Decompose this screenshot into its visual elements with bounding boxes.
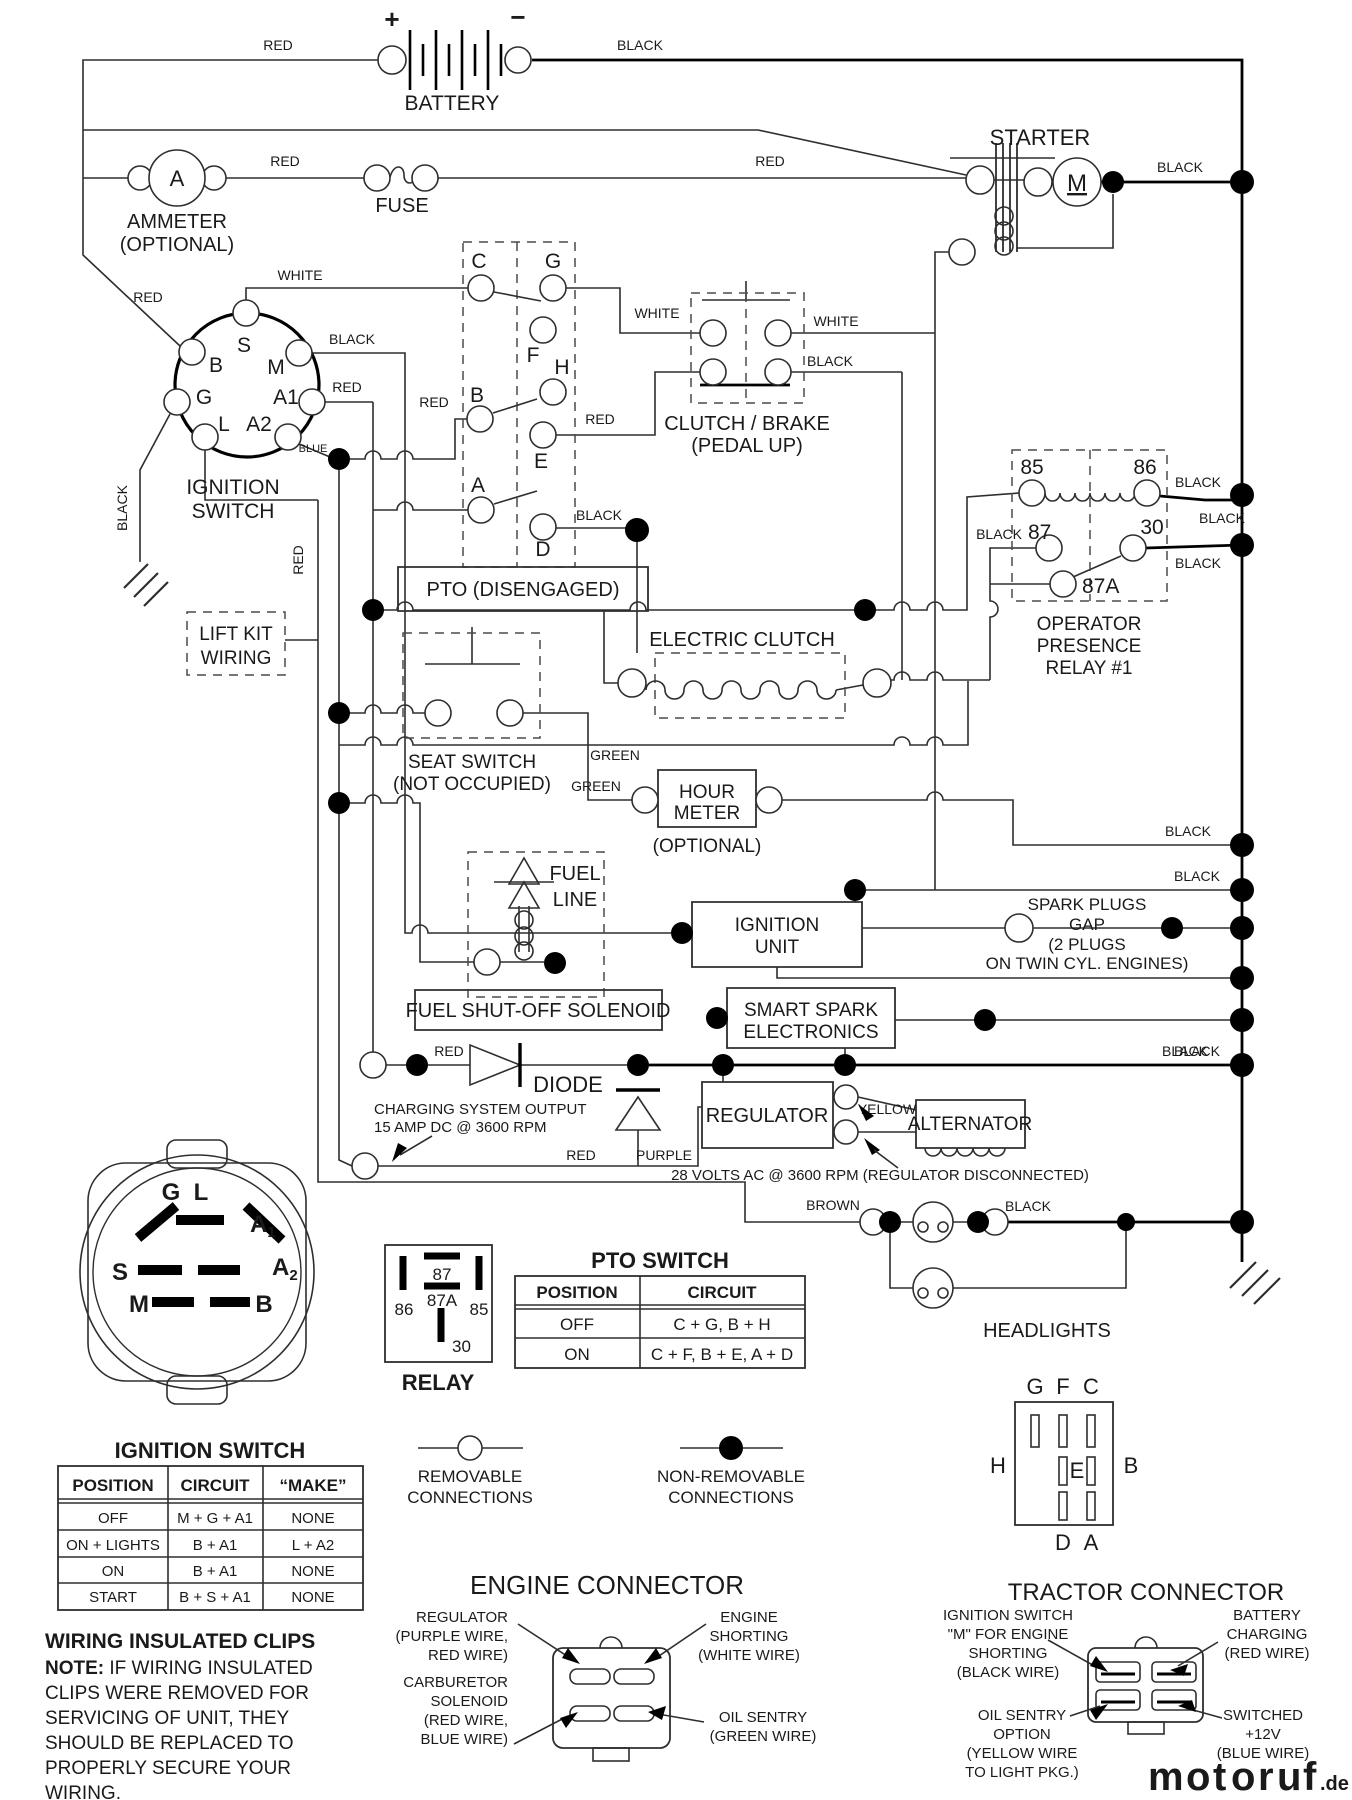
- engine-conn-reg-2: (PURPLE WIRE,: [395, 1628, 508, 1645]
- pto-table-header-position: POSITION: [536, 1283, 617, 1302]
- ignition-red-wire-label: RED: [133, 289, 163, 305]
- ignition-row3-circuit: B + A1: [193, 1563, 238, 1580]
- headlights-brown-label: BROWN: [806, 1197, 860, 1213]
- watermark-letter-o1: o: [1186, 1755, 1210, 1799]
- bus-purple-label: PURPLE: [636, 1147, 692, 1163]
- op-relay-label-1: OPERATOR: [1037, 614, 1142, 635]
- ignition-table-h3: “MAKE”: [279, 1476, 346, 1495]
- legend-nonremovable-2: CONNECTIONS: [668, 1488, 794, 1507]
- ignition-red-down-label: RED: [290, 545, 306, 575]
- clips-line-5: PROPERLY SECURE YOUR: [45, 1758, 291, 1779]
- charging-note-1: CHARGING SYSTEM OUTPUT: [374, 1101, 587, 1118]
- engine-conn-oil-1: OIL SENTRY: [719, 1709, 807, 1726]
- fuel-line-label-1: FUEL: [549, 863, 600, 885]
- pto-white-wire-label: WHITE: [277, 267, 322, 283]
- alternator-label: ALTERNATOR: [908, 1114, 1033, 1135]
- ammeter-label-2: (OPTIONAL): [120, 234, 234, 256]
- engine-conn-carb-2: SOLENOID: [430, 1693, 508, 1710]
- fuse-label: FUSE: [375, 195, 428, 217]
- engine-conn-oil-2: (GREEN WIRE): [710, 1728, 817, 1745]
- pto-red-e-wire-label: RED: [585, 411, 615, 427]
- bus-red-label: RED: [566, 1147, 596, 1163]
- fuel-line-label-2: LINE: [553, 889, 597, 911]
- fuel-solenoid-coil-icon: [494, 858, 554, 960]
- diode2-triangle-icon: [616, 1097, 660, 1130]
- engine-connector-arrows: [560, 1648, 666, 1728]
- hour-meter-label-1: HOUR: [679, 782, 735, 803]
- engine-connector: ENGINE CONNECTOR REGULATOR (PURPLE WIRE,…: [395, 1570, 816, 1761]
- clips-line-1: NOTE: IF WIRING INSULATED: [45, 1658, 313, 1679]
- pto-table-row1-position: OFF: [560, 1315, 594, 1334]
- battery-label: BATTERY: [405, 92, 500, 115]
- clips-line-2: CLIPS WERE REMOVED FOR: [45, 1683, 309, 1704]
- ignition-terminal-g: G: [196, 386, 212, 409]
- engine-conn-carb-4: BLUE WIRE): [420, 1731, 508, 1748]
- clips-line-3: SERVICING OF UNIT, THEY: [45, 1708, 290, 1729]
- op-relay-label-3: RELAY #1: [1046, 658, 1133, 679]
- headlights-label: HEADLIGHTS: [983, 1320, 1111, 1342]
- ignition-row2-pos: ON + LIGHTS: [66, 1537, 160, 1554]
- clips-title: WIRING INSULATED CLIPS: [45, 1630, 315, 1653]
- relay-pin-86: 86: [395, 1300, 414, 1319]
- charging-note-2: 15 AMP DC @ 3600 RPM: [374, 1119, 547, 1136]
- spark-plugs-label-1: SPARK PLUGS: [1028, 895, 1147, 914]
- ignition-terminal-a2: A2: [246, 413, 272, 436]
- non-removable-connection-icon: [719, 1436, 743, 1460]
- watermark-letter-f: f: [1303, 1755, 1317, 1799]
- fuse: FUSE RED: [364, 153, 785, 217]
- relay-terminal-87a: 87A: [1082, 575, 1119, 598]
- pto-connector-face: G F C H E B D A: [990, 1374, 1138, 1555]
- watermark-letter-u: u: [1277, 1755, 1301, 1799]
- ignition-row2-circuit: B + A1: [193, 1537, 238, 1554]
- diode-label: DIODE: [533, 1072, 603, 1097]
- engine-conn-reg-1: REGULATOR: [416, 1609, 508, 1626]
- schematic-canvas: + − BATTERY RED BLACK A AMMETER (OPTIONA…: [0, 0, 1352, 1800]
- tractor-conn-ign-2: "M" FOR ENGINE: [948, 1626, 1069, 1643]
- watermark-letter-m: m: [1148, 1755, 1184, 1799]
- electric-clutch: ELECTRIC CLUTCH GREEN: [590, 629, 891, 763]
- watermark-letter-t: t: [1213, 1755, 1226, 1799]
- spark-plugs-label-2: GAP: [1069, 915, 1105, 934]
- lift-kit-wiring: LIFT KIT WIRING: [199, 624, 273, 669]
- ignition-row4-make: NONE: [291, 1589, 334, 1606]
- pto-terminal-b: B: [470, 384, 484, 407]
- pto-face-f: F: [1056, 1374, 1069, 1399]
- electric-clutch-green-label: GREEN: [590, 747, 640, 763]
- diode-black-label: BLACK: [1162, 1043, 1209, 1059]
- pto-table-row1-circuit: C + G, B + H: [673, 1315, 770, 1334]
- engine-conn-eng-3: (WHITE WIRE): [698, 1647, 800, 1664]
- hour-meter-label-2: METER: [674, 803, 741, 824]
- relay-pin-87: 87: [433, 1265, 452, 1284]
- tractor-conn-oil-2: OPTION: [993, 1726, 1051, 1743]
- ignition-row2-make: L + A2: [292, 1537, 334, 1554]
- relay-pin-85: 85: [470, 1300, 489, 1319]
- ignition-unit-label-1: IGNITION: [735, 915, 819, 936]
- clutch-brake-white-label: WHITE: [813, 313, 858, 329]
- clutch-brake-black-label: BLACK: [807, 353, 854, 369]
- ignition-terminal-m: M: [267, 356, 285, 379]
- engine-conn-carb-1: CARBURETOR: [403, 1674, 508, 1691]
- seat-switch-label-1: SEAT SWITCH: [408, 752, 536, 773]
- ignition-row4-pos: START: [89, 1589, 137, 1606]
- regulator-label: REGULATOR: [706, 1105, 829, 1127]
- pto-terminal-g: G: [545, 250, 561, 273]
- watermark-letter-o2: o: [1231, 1755, 1255, 1799]
- face-pin-l: L: [194, 1179, 209, 1206]
- ignition-row3-pos: ON: [102, 1563, 125, 1580]
- pto-switch-table: PTO SWITCH POSITION CIRCUIT OFF C + G, B…: [515, 1248, 805, 1368]
- tractor-conn-ign-3: SHORTING: [969, 1645, 1048, 1662]
- pto-black-d-wire-label: BLACK: [576, 507, 623, 523]
- starter-black-wire-label: BLACK: [1157, 159, 1204, 175]
- alternator: ALTERNATOR: [908, 1114, 1033, 1135]
- tractor-connector-title: TRACTOR CONNECTOR: [1008, 1579, 1284, 1606]
- op-relay-black-86: BLACK: [1175, 474, 1222, 490]
- tractor-conn-oil-4: TO LIGHT PKG.): [965, 1764, 1079, 1781]
- tractor-conn-bat-1: BATTERY: [1233, 1607, 1301, 1624]
- relay-terminal-87: 87: [1028, 521, 1051, 544]
- ignition-row1-circuit: M + G + A1: [177, 1510, 253, 1527]
- watermark-logo: m o t o r u f .de: [1148, 1755, 1349, 1799]
- spark-plugs-label-4: ON TWIN CYL. ENGINES): [986, 954, 1189, 973]
- ignition-row1-pos: OFF: [98, 1510, 128, 1527]
- engine-conn-carb-3: (RED WIRE,: [424, 1712, 508, 1729]
- smart-spark-label-1: SMART SPARK: [744, 1000, 878, 1021]
- ignition-table-title: IGNITION SWITCH: [115, 1438, 306, 1463]
- engine-conn-eng-1: ENGINE: [720, 1609, 778, 1626]
- ignition-red-a1-wire-label: RED: [332, 379, 362, 395]
- ground-symbol-left: [124, 564, 168, 606]
- tractor-conn-bat-3: (RED WIRE): [1225, 1645, 1310, 1662]
- starter-post-icon: [996, 143, 1017, 252]
- face-pin-a2: A2: [272, 1254, 298, 1284]
- pto-terminal-e: E: [534, 450, 548, 473]
- pto-face-slots: [1031, 1415, 1095, 1520]
- ignition-switch: S B M G A1 L A2 IGNITION SWITCH RED BLAC…: [114, 289, 376, 606]
- pto-disengaged-label: PTO (DISENGAGED): [427, 579, 620, 601]
- op-relay-black-30: BLACK: [1175, 555, 1222, 571]
- wiring-schematic: + − BATTERY RED BLACK A AMMETER (OPTIONA…: [0, 0, 1352, 1800]
- ammeter-red-wire-label: RED: [270, 153, 300, 169]
- seat-green-wire-label: GREEN: [571, 778, 621, 794]
- ignition-blue-wire-label: BLUE: [299, 443, 328, 455]
- pto-face-c: C: [1083, 1374, 1099, 1399]
- pto-face-h: H: [990, 1453, 1006, 1478]
- ignition-row3-make: NONE: [291, 1563, 334, 1580]
- clips-line-6: WIRING.: [45, 1783, 121, 1800]
- pto-face-e: E: [1070, 1458, 1085, 1483]
- seat-switch: SEAT SWITCH (NOT OCCUPIED) GREEN: [393, 700, 621, 795]
- fuel-shutoff-solenoid: FUEL LINE FUEL SHUT-OFF SOLENOID: [406, 863, 671, 1022]
- pto-terminal-d: D: [535, 538, 550, 561]
- engine-connector-title: ENGINE CONNECTOR: [470, 1570, 744, 1600]
- face-pin-s: S: [112, 1259, 128, 1286]
- pto-face-d: D: [1055, 1530, 1071, 1555]
- pto-table-row2-circuit: C + F, B + E, A + D: [651, 1345, 793, 1364]
- starter-motor-symbol: M: [1067, 170, 1087, 197]
- removable-connection-icon: [458, 1436, 482, 1460]
- clutch-brake-label-2: (PEDAL UP): [691, 435, 803, 457]
- relay-pin-30: 30: [452, 1337, 471, 1356]
- relay-terminal-86: 86: [1133, 456, 1156, 479]
- ammeter-label-1: AMMETER: [127, 211, 227, 233]
- connection-legend: REMOVABLE CONNECTIONS NON-REMOVABLE CONN…: [407, 1436, 805, 1507]
- face-pin-b: B: [255, 1291, 272, 1318]
- face-pin-g: G: [162, 1179, 181, 1206]
- face-pin-a1: A1: [250, 1211, 276, 1241]
- ignition-row4-circuit: B + S + A1: [179, 1589, 251, 1606]
- spark-plugs: SPARK PLUGS GAP (2 PLUGS ON TWIN CYL. EN…: [986, 895, 1221, 1059]
- pto-terminal-a: A: [471, 474, 485, 497]
- op-relay-black-mid: BLACK: [1199, 510, 1246, 526]
- pto-white-g-wire-label: WHITE: [634, 305, 679, 321]
- ignition-table-h1: POSITION: [72, 1476, 153, 1495]
- relay-terminal-30: 30: [1140, 516, 1163, 539]
- ignition-terminal-l: L: [218, 413, 230, 436]
- tractor-conn-oil-3: (YELLOW WIRE: [967, 1745, 1078, 1762]
- pto-face-g: G: [1026, 1374, 1043, 1399]
- relay-terminal-85: 85: [1020, 456, 1043, 479]
- pto-terminal-c: C: [471, 250, 486, 273]
- fuel-solenoid-label: FUEL SHUT-OFF SOLENOID: [406, 1000, 671, 1022]
- legend-removable-1: REMOVABLE: [418, 1467, 523, 1486]
- tractor-conn-ign-1: IGNITION SWITCH: [943, 1607, 1073, 1624]
- pto-table-header-circuit: CIRCUIT: [688, 1283, 758, 1302]
- ignition-terminal-s: S: [237, 334, 251, 357]
- wires-heavy: [532, 60, 1242, 1262]
- ground-symbol-right: [1230, 1262, 1280, 1304]
- pto-face-a: A: [1084, 1530, 1099, 1555]
- battery: + − BATTERY RED BLACK: [263, 2, 663, 115]
- watermark-letter-r: r: [1258, 1755, 1274, 1799]
- hour-meter-black-label: BLACK: [1165, 823, 1212, 839]
- op-relay-black-87: BLACK: [976, 526, 1023, 542]
- lift-kit-label-2: WIRING: [201, 648, 272, 669]
- tractor-conn-ign-4: (BLACK WIRE): [957, 1664, 1060, 1681]
- diode-triangle-icon: [470, 1045, 520, 1085]
- headlight-bulb-1-icon: [913, 1202, 953, 1242]
- ignition-terminal-a1: A1: [273, 386, 299, 409]
- battery-red-wire-label: RED: [263, 37, 293, 53]
- ignition-terminal-b: B: [209, 354, 223, 377]
- ignition-unit-black-label: BLACK: [1174, 868, 1221, 884]
- fuse-red-wire-label: RED: [755, 153, 785, 169]
- smart-spark-label-2: ELECTRONICS: [743, 1022, 878, 1043]
- battery-minus-sign: −: [510, 2, 525, 32]
- smart-spark-electronics: SMART SPARK ELECTRONICS: [743, 1000, 878, 1043]
- headlight-bulb-2-icon: [913, 1268, 953, 1308]
- engine-conn-reg-3: RED WIRE): [428, 1647, 508, 1664]
- tractor-conn-sw-2: +12V: [1245, 1726, 1280, 1743]
- engine-connector-slots: [570, 1669, 654, 1721]
- charging-output-terminal: [352, 1153, 378, 1179]
- battery-plus-sign: +: [384, 4, 399, 34]
- headlights-black-label: BLACK: [1005, 1198, 1052, 1214]
- relay-pin-87a: 87A: [427, 1291, 458, 1310]
- ignition-unit-label-2: UNIT: [755, 937, 800, 958]
- ignition-switch-table: IGNITION SWITCH POSITION CIRCUIT “MAKE” …: [58, 1438, 363, 1610]
- relay-legend-label: RELAY: [402, 1370, 475, 1395]
- lift-kit-label-1: LIFT KIT: [199, 624, 273, 645]
- ignition-switch-label-2: SWITCH: [192, 500, 275, 523]
- starter-label: STARTER: [990, 125, 1091, 150]
- headlights: HEADLIGHTS BROWN BLACK: [806, 1197, 1280, 1342]
- tractor-conn-sw-1: SWITCHED: [1223, 1707, 1303, 1724]
- ammeter: A AMMETER (OPTIONAL) RED: [120, 150, 300, 256]
- electric-clutch-label: ELECTRIC CLUTCH: [649, 629, 835, 651]
- legend-nonremovable-1: NON-REMOVABLE: [657, 1467, 805, 1486]
- pto-table-row2-position: ON: [564, 1345, 590, 1364]
- pto-terminal-f: F: [527, 344, 540, 367]
- clips-line-4: SHOULD BE REPLACED TO: [45, 1733, 293, 1754]
- operator-presence-relay: 85 86 87 30 87A OPERATOR PRESENCE RELAY …: [976, 456, 1246, 679]
- pto-face-b: B: [1124, 1453, 1139, 1478]
- ignition-unit: IGNITION UNIT BLACK: [735, 868, 1221, 958]
- ammeter-symbol: A: [170, 166, 185, 191]
- ignition-switch-label-1: IGNITION: [186, 476, 279, 499]
- ignition-ground-black-label: BLACK: [114, 484, 130, 531]
- ignition-row1-make: NONE: [291, 1510, 334, 1527]
- starter: M STARTER BLACK: [949, 125, 1204, 265]
- wiring-clips-note: WIRING INSULATED CLIPS NOTE: IF WIRING I…: [45, 1630, 315, 1800]
- face-pin-m: M: [129, 1291, 149, 1318]
- pto-terminal-h: H: [554, 356, 569, 379]
- regulator-note: 28 VOLTS AC @ 3600 RPM (REGULATOR DISCON…: [671, 1167, 1089, 1184]
- op-relay-label-2: PRESENCE: [1037, 636, 1142, 657]
- dashed-boxes: [187, 242, 1167, 997]
- engine-conn-eng-2: SHORTING: [710, 1628, 789, 1645]
- battery-cells-icon: [410, 30, 501, 90]
- clutch-brake-label-1: CLUTCH / BRAKE: [664, 413, 830, 435]
- ignition-table-h2: CIRCUIT: [181, 1476, 251, 1495]
- ignition-connector-face: G L A1 A2 S M B: [80, 1140, 314, 1404]
- pto-red-b-wire-label: RED: [419, 394, 449, 410]
- tractor-conn-bat-2: CHARGING: [1227, 1626, 1308, 1643]
- hour-meter-optional-label: (OPTIONAL): [653, 836, 762, 857]
- tractor-conn-oil-1: OIL SENTRY: [978, 1707, 1066, 1724]
- pto-table-title: PTO SWITCH: [591, 1248, 729, 1273]
- battery-positive-terminal: [378, 46, 406, 74]
- tractor-connector: TRACTOR CONNECTOR IGNITION SWITCH "M" FO…: [943, 1579, 1310, 1781]
- diode-red-label: RED: [434, 1043, 464, 1059]
- spark-plugs-label-3: (2 PLUGS: [1048, 935, 1125, 954]
- legend-removable-2: CONNECTIONS: [407, 1488, 533, 1507]
- relay-legend: 87 87A 86 85 30 RELAY: [385, 1245, 492, 1395]
- ignition-black-wire-label: BLACK: [329, 331, 376, 347]
- battery-negative-terminal: [505, 47, 531, 73]
- watermark-suffix: .de: [1320, 1773, 1349, 1795]
- battery-black-wire-label: BLACK: [617, 37, 664, 53]
- seat-switch-label-2: (NOT OCCUPIED): [393, 774, 551, 795]
